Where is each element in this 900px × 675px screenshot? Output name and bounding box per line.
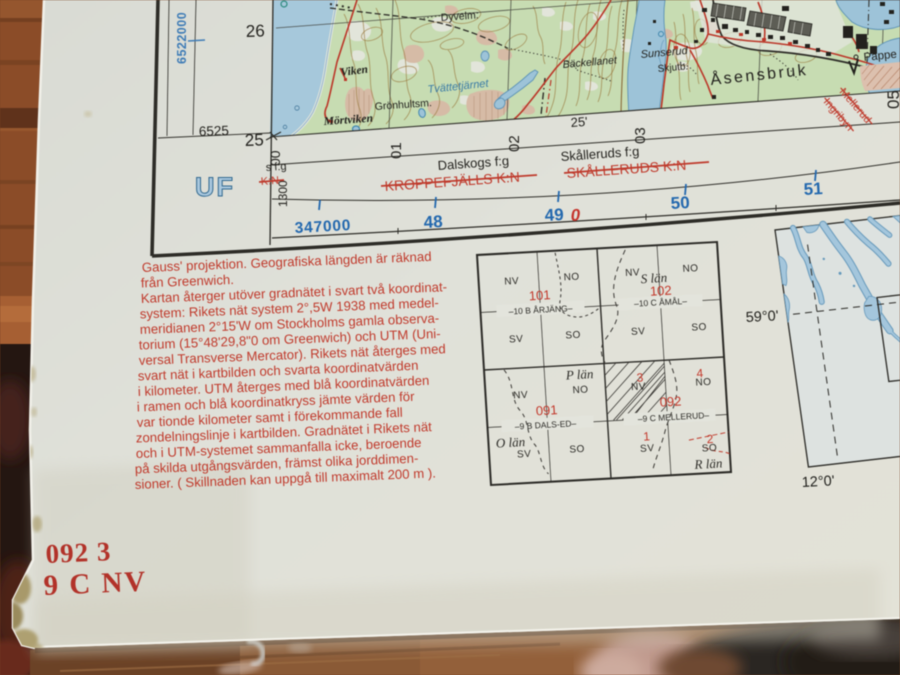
svg-text:3: 3	[636, 370, 644, 384]
svg-text:26: 26	[245, 21, 265, 41]
svg-text:347000: 347000	[294, 217, 351, 237]
svg-text:49: 49	[544, 205, 564, 225]
svg-text:091: 091	[535, 402, 558, 418]
svg-text:SO: SO	[691, 322, 707, 334]
svg-text:SV: SV	[631, 326, 646, 338]
svg-text:02: 02	[506, 135, 523, 152]
svg-text:03: 03	[632, 127, 649, 144]
svg-text:01: 01	[388, 142, 405, 159]
svg-text:NV: NV	[625, 267, 641, 279]
svg-text:NV: NV	[504, 276, 520, 288]
svg-text:9 C NV: 9 C NV	[43, 565, 148, 601]
svg-text:P län: P län	[564, 366, 593, 383]
svg-text:48: 48	[423, 212, 443, 232]
svg-text:0: 0	[570, 205, 581, 224]
svg-text:25': 25'	[570, 114, 588, 130]
svg-text:2: 2	[706, 432, 714, 446]
svg-text:NO: NO	[563, 272, 580, 284]
svg-text:59°0': 59°0'	[745, 308, 779, 326]
svg-text:NO: NO	[682, 263, 699, 275]
svg-text:SV: SV	[640, 443, 655, 455]
svg-text:6522000: 6522000	[175, 12, 189, 64]
svg-text:S län: S län	[640, 270, 667, 286]
svg-text:12°0': 12°0'	[801, 473, 835, 491]
svg-text:50: 50	[670, 193, 690, 213]
svg-text:05: 05	[884, 90, 900, 109]
svg-text:s f:g: s f:g	[265, 161, 287, 174]
svg-text:SV: SV	[509, 334, 524, 346]
svg-text:51: 51	[803, 179, 823, 199]
svg-text:6525: 6525	[199, 123, 230, 139]
svg-text:1: 1	[643, 429, 651, 443]
svg-text:R län: R län	[693, 455, 723, 472]
svg-text:NO: NO	[572, 384, 589, 396]
svg-text:4: 4	[696, 366, 704, 380]
svg-text:25: 25	[244, 130, 264, 150]
svg-text:SO: SO	[569, 444, 585, 456]
svg-text:NV: NV	[513, 390, 529, 402]
svg-text:092 3: 092 3	[45, 536, 112, 569]
svg-text:SO: SO	[565, 330, 581, 342]
svg-text:O län: O län	[495, 434, 525, 451]
svg-text:092: 092	[659, 393, 682, 409]
svg-text:SV: SV	[517, 449, 532, 461]
svg-text:101: 101	[528, 287, 551, 303]
svg-text:UF: UF	[195, 172, 235, 202]
